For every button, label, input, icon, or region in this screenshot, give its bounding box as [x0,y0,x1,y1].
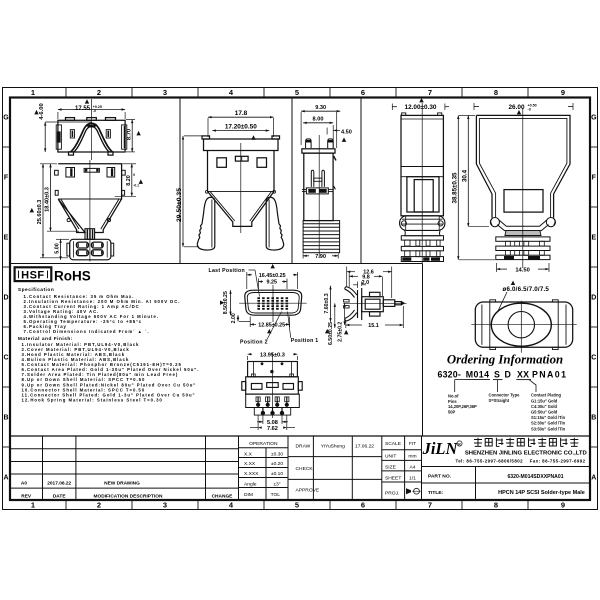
svg-text:Tel: 86-755-2997-6806/5802: Tel: 86-755-2997-6806/5802 Fax: 86-755-2… [455,458,585,463]
svg-text:2.00: 2.00 [231,313,237,323]
svg-text:Angle: Angle [244,481,257,487]
svg-text:C: C [3,355,8,362]
svg-text:25.60±0.3: 25.60±0.3 [37,200,43,225]
svg-text:F: F [592,175,597,182]
svg-text:HPCN 14P SCSI Solder-type Male: HPCN 14P SCSI Solder-type Male [498,490,585,496]
svg-text:E: E [591,235,596,242]
svg-text:DIM: DIM [244,492,253,498]
svg-text:8.20: 8.20 [126,175,132,186]
svg-text:B: B [3,415,8,422]
svg-text:38.85±0.35: 38.85±0.35 [451,172,458,203]
svg-text:5: 5 [295,88,299,97]
svg-text:X.XXX: X.XXX [244,471,259,477]
svg-text:Ordering Information: Ordering Information [447,353,563,367]
svg-text:15.1: 15.1 [368,323,379,329]
svg-text:12.00±0.30: 12.00±0.30 [405,104,437,111]
svg-text:E: E [4,235,9,242]
svg-text:3: 3 [163,88,167,97]
svg-text:50P: 50P [448,410,456,415]
svg-text:D: D [505,369,511,379]
svg-text:FIT: FIT [409,441,416,447]
svg-text:±0.20: ±0.20 [271,461,283,467]
svg-text:2017.06.22: 2017.06.22 [47,481,71,487]
svg-text:Pins: Pins [448,399,457,404]
svg-text:No.of: No.of [448,393,459,398]
svg-text:M: M [466,369,473,379]
svg-text:CHECK: CHECK [296,466,314,472]
svg-text:14.50: 14.50 [515,267,530,273]
svg-text:ø6.0/6.5/7.0/7.5: ø6.0/6.5/7.0/7.5 [503,286,550,293]
svg-text:014: 014 [474,369,490,379]
svg-text:30.4: 30.4 [461,169,468,182]
svg-text:26.00: 26.00 [509,104,525,111]
svg-text:A4: A4 [410,464,416,470]
svg-text:12.Hook Spring Material: Stain: 12.Hook Spring Material: Stainless Steel… [22,397,163,402]
svg-text:UNIT: UNIT [385,453,396,459]
svg-text:8: 8 [494,88,498,97]
svg-text:TITLE:: TITLE: [428,490,444,496]
svg-text:9: 9 [561,88,565,97]
svg-text:3: 3 [163,501,167,510]
svg-text:Position 1: Position 1 [291,338,319,344]
svg-text:4.50: 4.50 [341,130,352,136]
svg-text:6: 6 [361,501,365,510]
svg-text:13.95±0.3: 13.95±0.3 [260,352,285,358]
svg-text:G: G [591,115,597,122]
svg-text:G1:15u" Gold: G1:15u" Gold [531,398,558,403]
svg-text:S2:30u" Gold /Tin: S2:30u" Gold /Tin [531,421,566,426]
svg-text:18.40±0.3: 18.40±0.3 [44,187,50,212]
svg-text:PART NO.: PART NO. [428,474,452,480]
svg-text:D: D [591,295,596,302]
svg-text:Connector Type: Connector Type [489,392,521,397]
svg-text:1/1: 1/1 [409,476,416,482]
svg-text:mm: mm [408,454,416,459]
svg-text:2.75±0.2: 2.75±0.2 [338,322,344,342]
svg-text:XX: XX [517,369,529,379]
svg-text:C: C [591,355,596,362]
svg-text:X.X: X.X [244,451,253,457]
svg-text:TOL: TOL [271,492,281,498]
svg-text:G5:50u" Gold: G5:50u" Gold [531,410,558,415]
svg-text:B: B [591,415,596,422]
svg-text:7.90: 7.90 [315,254,326,260]
svg-text:S: S [494,369,500,379]
svg-text:1: 1 [31,88,35,97]
svg-text:2: 2 [97,88,101,97]
svg-text:5: 5 [295,501,299,510]
svg-text:Last Position: Last Position [209,268,245,274]
svg-text:C4:30u" Gold: C4:30u" Gold [531,404,558,409]
svg-text:Contact Plating: Contact Plating [531,392,562,397]
svg-text:OPERATION: OPERATION [249,441,278,447]
svg-text:A: A [591,475,596,482]
svg-text:29.50±0.35: 29.50±0.35 [176,188,183,222]
svg-text:±0.10: ±0.10 [271,471,283,477]
svg-text:RoHS: RoHS [54,269,91,284]
svg-text:S=Straight: S=Straight [489,398,510,403]
svg-text:D: D [3,295,8,302]
svg-text:7: 7 [428,501,432,510]
svg-text:5.00: 5.00 [55,243,61,254]
svg-text:7: 7 [428,88,432,97]
svg-text:9.25: 9.25 [267,280,278,286]
svg-text:-0: -0 [93,109,96,113]
svg-text:Specification: Specification [18,287,54,293]
svg-text:6320-M014SDXXPNA01: 6320-M014SDXXPNA01 [507,474,563,480]
svg-text:S1:15u" Gold /Tin: S1:15u" Gold /Tin [531,415,566,420]
svg-text:SHEET: SHEET [385,476,401,482]
svg-text:4-6.00: 4-6.00 [39,103,45,119]
svg-text:CHANGE: CHANGE [212,493,234,499]
svg-text:17.06.22: 17.06.22 [355,444,374,450]
svg-text:DRAW: DRAW [296,444,311,450]
svg-text:17.20±0.50: 17.20±0.50 [225,123,257,130]
svg-text:7.60±0.3: 7.60±0.3 [324,293,330,313]
svg-text:Position 2: Position 2 [240,340,268,346]
svg-text:6320-: 6320- [438,369,462,379]
svg-text:F: F [4,175,9,182]
svg-text:16.45±0.25: 16.45±0.25 [259,273,286,279]
svg-text:MODIFICATION DESCRIPTION: MODIFICATION DESCRIPTION [94,493,163,499]
svg-text:NEW DRAWING: NEW DRAWING [104,481,140,487]
svg-text:JiLN: JiLN [422,439,459,458]
svg-text:±0.30: ±0.30 [271,451,283,457]
svg-text:8: 8 [494,501,498,510]
svg-text:APPROVE: APPROVE [296,488,320,494]
svg-text:17.8: 17.8 [235,110,248,117]
svg-text:±3°: ±3° [273,481,280,487]
svg-text:DATE: DATE [53,493,67,499]
svg-text:G: G [3,115,9,122]
svg-text:0: 0 [133,173,135,177]
svg-text:SIZE: SIZE [385,464,397,470]
svg-text:-0: -0 [528,108,531,112]
svg-text:A: A [3,475,8,482]
svg-text:7.62: 7.62 [267,426,278,432]
svg-text:14,20P,26P,36P: 14,20P,26P,36P [448,404,477,409]
svg-text:REV: REV [21,493,32,499]
svg-text:SHENZHEN JINLING ELECTRONIC CO: SHENZHEN JINLING ELECTRONIC CO.,LTD [465,451,587,457]
svg-text:YiYuSheng: YiYuSheng [321,444,345,450]
svg-text:8.00: 8.00 [313,117,324,123]
svg-text:PROJ.: PROJ. [385,490,399,496]
svg-text:1: 1 [31,501,35,510]
svg-text:A0: A0 [21,481,27,487]
svg-text:SCALE: SCALE [385,441,402,447]
svg-text:12.85±0.25: 12.85±0.25 [258,322,285,328]
svg-text:PNA01: PNA01 [532,369,567,379]
svg-text:17.55: 17.55 [75,106,91,112]
svg-text:9: 9 [561,501,565,510]
svg-text:2: 2 [97,501,101,510]
svg-text:HSF: HSF [21,269,45,281]
svg-text:9.30: 9.30 [315,105,326,111]
svg-text:-0.1: -0.1 [133,184,139,188]
svg-text:S3:50u" Gold /Tin: S3:50u" Gold /Tin [531,426,566,431]
svg-text:6.50±0.25: 6.50±0.25 [328,322,334,345]
svg-text:X.XX: X.XX [244,461,256,467]
svg-text:8.70: 8.70 [126,129,132,140]
svg-text:6: 6 [361,88,365,97]
svg-text:7.Control Dimensions Indicated: 7.Control Dimensions Indicated From´ ▲ ´… [24,329,150,334]
